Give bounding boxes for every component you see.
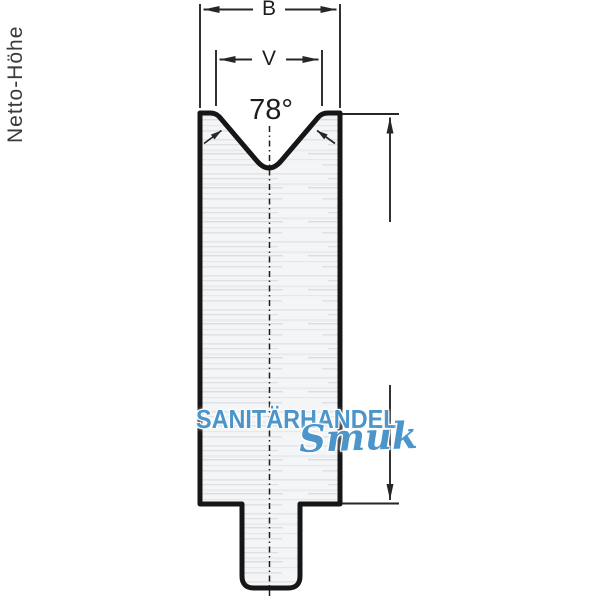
diagram-canvas: B V 78° Netto-Höhe SANITÄRHANDEL Smuk [0, 0, 600, 600]
die-drawing [0, 0, 600, 600]
opening-v-label: V [253, 47, 285, 71]
watermark-signature: Smuk [298, 413, 418, 461]
netto-hoehe-label: Netto-Höhe [0, 0, 32, 168]
width-b-label: B [253, 0, 285, 21]
groove-angle-label: 78° [240, 94, 302, 126]
